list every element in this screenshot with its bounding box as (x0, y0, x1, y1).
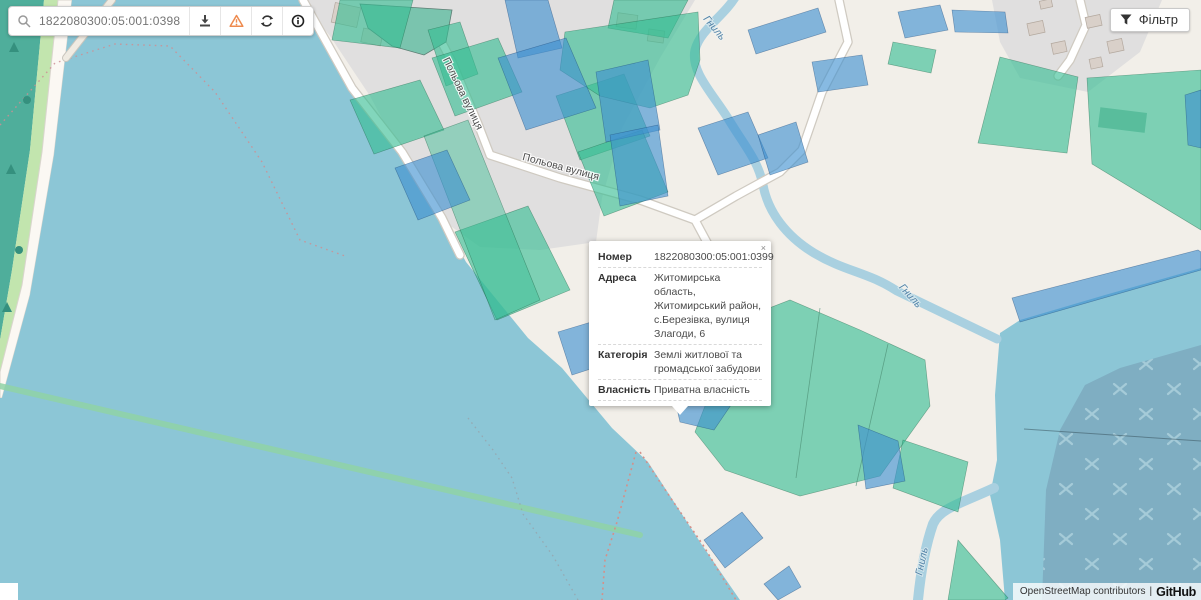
popup-row-value: Житомирська область, Житомирський район,… (650, 271, 762, 341)
info-button[interactable] (282, 7, 313, 35)
popup-row: Власність Приватна власність (598, 380, 762, 401)
parcel (952, 10, 1008, 33)
popup-row-value: 1822080300:05:001:0399 (650, 250, 774, 264)
popup-row: Номер 1822080300:05:001:0399 (598, 247, 762, 268)
attribution: OpenStreetMap contributors | GitHub (1013, 583, 1201, 600)
search-input[interactable] (39, 7, 189, 35)
parcel (812, 55, 868, 92)
popup-row-label: Адреса (598, 271, 650, 341)
popup-row-value: Землі житлової та громадської забудови (650, 348, 762, 376)
popup-row-label: Власність (598, 383, 650, 397)
info-circle-icon (291, 14, 305, 28)
popup-row-label: Категорія (598, 348, 650, 376)
search-bar (8, 6, 314, 36)
filter-button[interactable]: Фільтр (1110, 8, 1190, 32)
attribution-github-link[interactable]: GitHub (1156, 585, 1196, 599)
popup-row-label: Номер (598, 250, 650, 264)
popup-row-value: Приватна власність (650, 383, 762, 397)
warning-triangle-icon (229, 14, 244, 28)
parcel (332, 0, 413, 48)
parcel (610, 125, 668, 206)
warning-button[interactable] (220, 7, 251, 35)
attribution-separator: | (1150, 586, 1153, 597)
search-icon (9, 7, 39, 35)
download-icon (198, 14, 212, 28)
parcel-popup: × Номер 1822080300:05:001:0399 Адреса Жи… (589, 241, 771, 406)
map-application: Польова вулиця Польова вулиця Гниль Гнил… (0, 0, 1201, 600)
refresh-icon (260, 14, 274, 28)
popup-row: Категорія Землі житлової та громадської … (598, 345, 762, 380)
download-button[interactable] (189, 7, 220, 35)
popup-row: Адреса Житомирська область, Житомирський… (598, 268, 762, 345)
attribution-osm-link[interactable]: OpenStreetMap contributors (1020, 586, 1146, 597)
funnel-icon (1120, 14, 1132, 25)
popup-close-button[interactable]: × (761, 242, 766, 254)
popup-tail (672, 406, 688, 415)
refresh-button[interactable] (251, 7, 282, 35)
parcel (1185, 90, 1201, 148)
bottom-left-white-box (0, 583, 18, 600)
filter-button-label: Фільтр (1139, 12, 1178, 27)
